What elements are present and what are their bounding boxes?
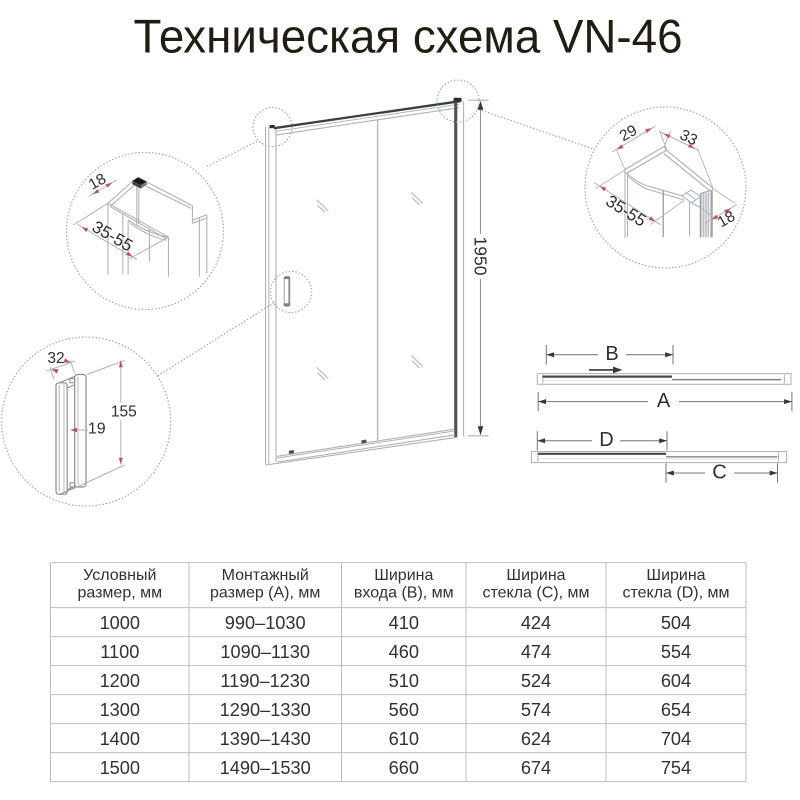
svg-text:474: 474 <box>521 642 551 662</box>
svg-text:1390–1430: 1390–1430 <box>220 729 311 749</box>
svg-text:C: C <box>712 462 726 484</box>
svg-text:754: 754 <box>661 758 691 778</box>
svg-text:1090–1130: 1090–1130 <box>220 642 310 662</box>
svg-text:1200: 1200 <box>100 671 140 691</box>
svg-text:19: 19 <box>88 421 106 438</box>
svg-text:B: B <box>605 343 618 365</box>
svg-text:Ширина: Ширина <box>506 567 565 584</box>
svg-text:32: 32 <box>47 350 64 367</box>
svg-text:1950: 1950 <box>471 237 491 276</box>
svg-text:654: 654 <box>661 700 691 720</box>
svg-text:574: 574 <box>521 700 551 720</box>
svg-text:1100: 1100 <box>100 642 139 662</box>
svg-text:стекла (С), мм: стекла (С), мм <box>482 585 589 602</box>
svg-text:A: A <box>657 390 671 412</box>
svg-text:Монтажный: Монтажный <box>222 567 309 584</box>
svg-text:510: 510 <box>389 671 419 691</box>
svg-text:410: 410 <box>389 613 419 633</box>
svg-text:704: 704 <box>661 729 691 749</box>
svg-text:размер (А), мм: размер (А), мм <box>210 585 320 602</box>
svg-text:504: 504 <box>661 613 691 633</box>
svg-text:560: 560 <box>389 700 419 720</box>
svg-text:624: 624 <box>521 729 551 749</box>
svg-text:554: 554 <box>661 642 691 662</box>
svg-text:460: 460 <box>389 642 419 662</box>
svg-text:1290–1330: 1290–1330 <box>220 700 311 720</box>
svg-text:D: D <box>599 429 613 451</box>
svg-text:1190–1230: 1190–1230 <box>220 671 310 691</box>
svg-text:входа (В), мм: входа (В), мм <box>354 585 454 602</box>
svg-text:Ширина: Ширина <box>374 567 433 584</box>
svg-text:1490–1530: 1490–1530 <box>220 758 311 778</box>
svg-text:Ширина: Ширина <box>646 567 705 584</box>
svg-text:990–1030: 990–1030 <box>225 613 306 633</box>
svg-text:размер, мм: размер, мм <box>77 585 162 602</box>
svg-text:660: 660 <box>389 758 419 778</box>
svg-text:стекла (D), мм: стекла (D), мм <box>622 585 729 602</box>
svg-text:1300: 1300 <box>100 700 140 720</box>
svg-text:604: 604 <box>661 671 691 691</box>
svg-text:Техническая схема VN-46: Техническая схема VN-46 <box>134 10 683 63</box>
svg-text:610: 610 <box>389 729 419 749</box>
svg-text:524: 524 <box>521 671 551 691</box>
svg-text:155: 155 <box>111 403 137 420</box>
svg-text:424: 424 <box>521 613 551 633</box>
svg-text:Условный: Условный <box>83 567 156 584</box>
svg-text:674: 674 <box>521 758 551 778</box>
svg-text:1400: 1400 <box>100 729 140 749</box>
svg-text:1500: 1500 <box>100 758 140 778</box>
svg-text:1000: 1000 <box>100 613 140 633</box>
